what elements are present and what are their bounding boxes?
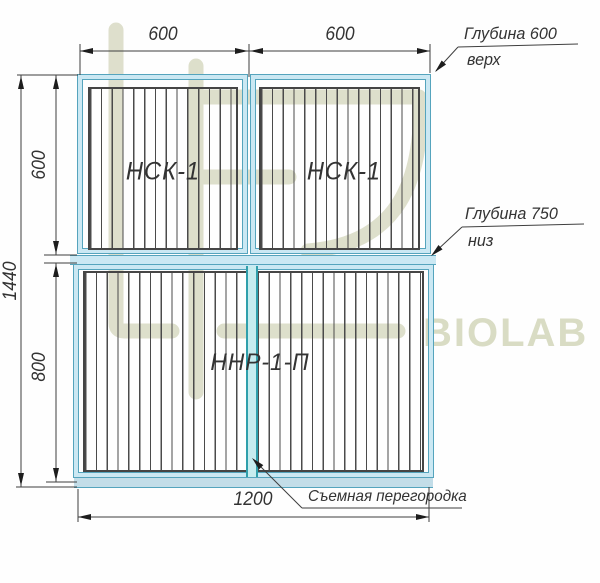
annotation-depth-top-line2: верх [467, 50, 501, 70]
annotation-removable-partition: Съемная перегородка [308, 488, 467, 506]
label-cabinet-upper-right: НСК-1 [307, 158, 381, 187]
label-cabinet-lower: ННР-1-П [210, 349, 309, 377]
dim-left-upper: 600 [29, 150, 51, 179]
annotation-depth-top-line1: Глубина 600 [464, 24, 557, 44]
dim-bottom: 1200 [234, 489, 273, 511]
dim-left-lower: 800 [29, 352, 51, 381]
annotation-depth-bottom-line2: низ [468, 231, 493, 251]
dimension-lines [0, 0, 600, 583]
dim-top-right: 600 [325, 24, 354, 46]
annotation-depth-bottom-line1: Глубина 750 [465, 204, 558, 224]
dim-left-total: 1440 [0, 262, 22, 301]
label-cabinet-upper-left: НСК-1 [126, 158, 200, 187]
technical-drawing: BIOLAB [0, 0, 600, 583]
dim-top-left: 600 [148, 24, 177, 46]
